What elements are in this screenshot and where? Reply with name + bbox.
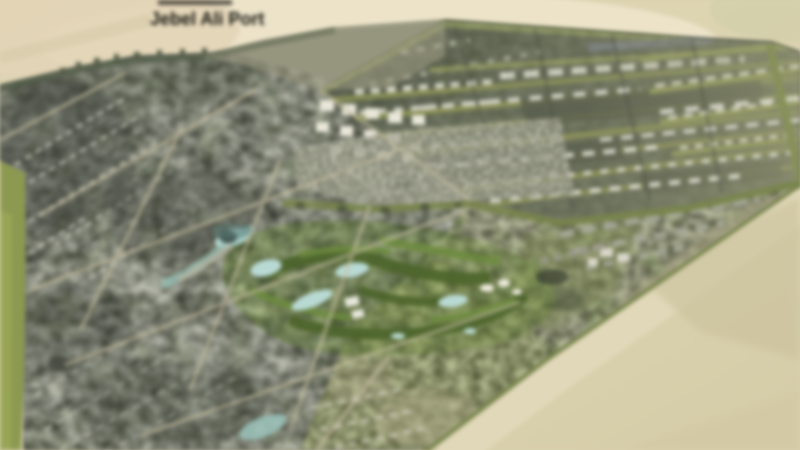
- svg-text:Jebel Ali Port: Jebel Ali Port: [150, 9, 264, 29]
